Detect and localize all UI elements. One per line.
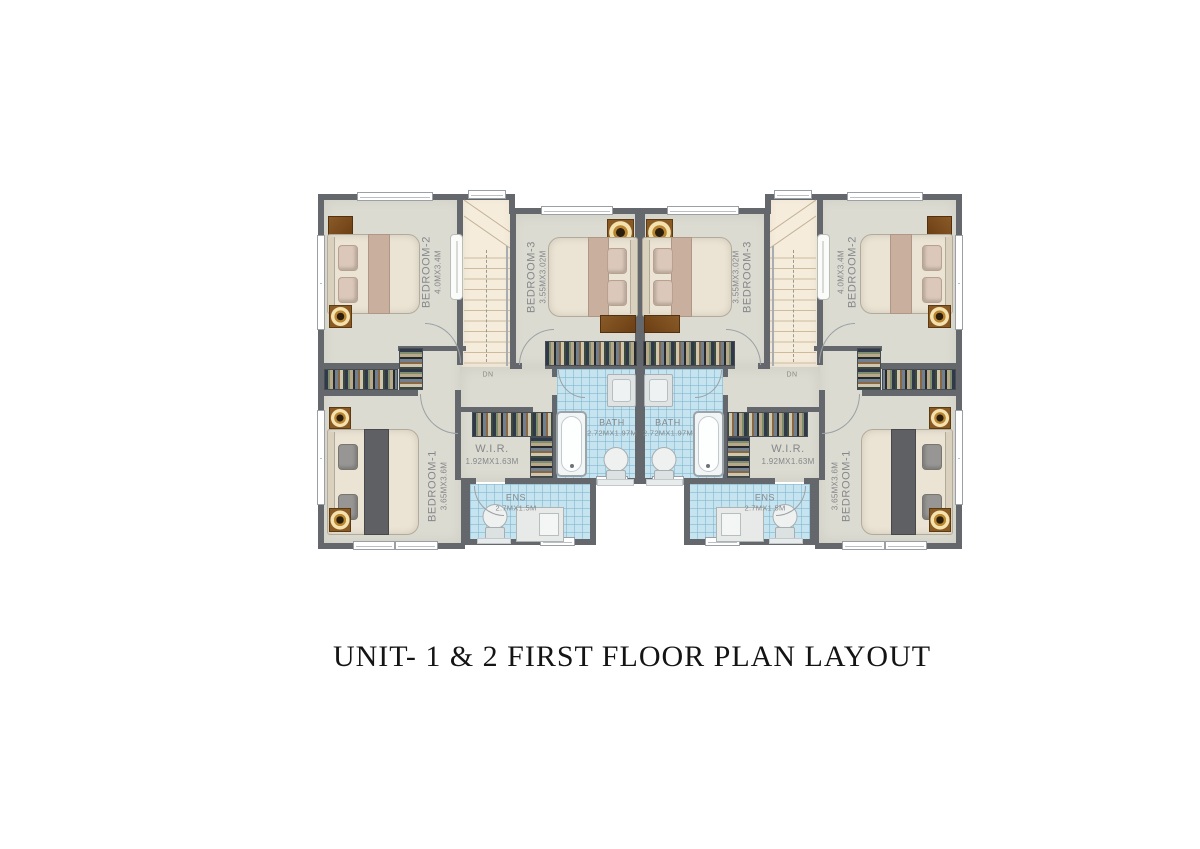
floor-rug <box>644 315 680 333</box>
wall <box>862 390 962 396</box>
wardrobe <box>882 369 956 390</box>
wardrobe <box>857 348 881 390</box>
room-label-ens-unit1: ENS 2.7MX1.5M <box>495 493 536 514</box>
pillow <box>338 444 358 470</box>
toilet-mat <box>477 538 511 544</box>
bed-runner <box>671 237 692 317</box>
floor-plan-page: BEDROOM-2 4.0MX3.4M BEDROOM-3 3.55MX3.02… <box>0 0 1200 849</box>
stairs-dn-label-unit1: DN <box>482 372 493 379</box>
unit-1-graphics <box>318 186 640 560</box>
nightstand-lamp <box>928 305 951 328</box>
bathtub <box>693 411 724 477</box>
radiator <box>817 234 830 300</box>
window <box>667 206 739 215</box>
wir-wardrobe <box>472 412 553 437</box>
bed-bedroom2 <box>327 234 420 314</box>
bed-bedroom3 <box>548 237 638 317</box>
pillow <box>607 248 627 274</box>
pillow <box>922 277 942 303</box>
bed-runner <box>364 429 389 535</box>
wall <box>461 478 470 543</box>
stair-diagonal-lines <box>464 198 510 250</box>
floor-rug <box>600 315 636 333</box>
wir-wardrobe <box>727 437 750 478</box>
pillow <box>607 280 627 306</box>
room-label-bedroom3-unit1: BEDROOM-3 3.55MX3.02M <box>526 241 549 313</box>
window <box>541 206 613 215</box>
bath-sink <box>607 374 636 407</box>
page-title: UNIT- 1 & 2 FIRST FLOOR PLAN LAYOUT <box>333 640 931 674</box>
window <box>955 235 963 330</box>
nightstand-lamp <box>329 407 351 429</box>
pillow <box>653 280 673 306</box>
wall <box>684 478 775 484</box>
wall <box>810 478 819 543</box>
window <box>357 192 433 201</box>
stair-walkline <box>792 250 794 362</box>
room-label-bedroom1-unit2: BEDROOM-1 3.65MX3.6M <box>831 450 854 522</box>
pillow <box>922 444 942 470</box>
window <box>317 235 325 330</box>
wardrobe <box>324 369 398 390</box>
room-label-ens-unit2: ENS 2.7MX1.5M <box>744 493 785 514</box>
stair-railing <box>772 246 774 366</box>
toilet <box>601 447 630 483</box>
bed-runner <box>891 429 916 535</box>
wall <box>590 482 596 545</box>
room-label-wir-unit1: W.I.R. 1.92MX1.63M <box>465 443 518 467</box>
pillow <box>922 245 942 271</box>
wardrobe <box>643 341 735 366</box>
room-label-wir-unit2: W.I.R. 1.92MX1.63M <box>761 443 814 467</box>
window <box>955 410 963 505</box>
bed-bedroom2 <box>860 234 953 314</box>
bath-sink <box>644 374 673 407</box>
bed-runner <box>368 234 390 314</box>
bed-headboard <box>328 237 335 312</box>
window <box>395 541 438 550</box>
nightstand-lamp <box>929 407 951 429</box>
stair-walkline <box>486 250 488 362</box>
bed-bedroom3 <box>642 237 732 317</box>
pillow <box>338 245 358 271</box>
window <box>842 541 885 550</box>
pillow <box>653 248 673 274</box>
toilet-mat <box>597 479 634 486</box>
bed-headboard <box>630 240 637 315</box>
bed-headboard <box>945 237 952 312</box>
pillow <box>338 277 358 303</box>
room-label-bath-unit2: BATH 2.72MX1.97M <box>643 418 693 439</box>
nightstand-lamp <box>329 305 352 328</box>
room-label-bath-unit1: BATH 2.72MX1.97M <box>587 418 637 439</box>
wardrobe <box>399 348 423 390</box>
nightstand-lamp <box>929 508 951 532</box>
wir-wardrobe <box>530 437 553 478</box>
bed-runner <box>588 237 609 317</box>
room-label-bedroom2-unit2: BEDROOM-2 4.0MX3.4M <box>837 236 860 308</box>
room-label-bedroom1-unit1: BEDROOM-1 3.65MX3.6M <box>427 450 450 522</box>
wir-wardrobe <box>727 412 808 437</box>
stairs-dn-label-unit2: DN <box>786 372 797 379</box>
stair-diagonal-lines <box>770 198 816 250</box>
wall <box>505 478 596 484</box>
bed-runner <box>890 234 912 314</box>
toilet-mat <box>646 479 683 486</box>
wardrobe <box>545 341 637 366</box>
stair-railing <box>506 246 508 366</box>
room-label-bedroom3-unit2: BEDROOM-3 3.55MX3.02M <box>732 241 755 313</box>
window <box>317 410 325 505</box>
nightstand-lamp <box>329 508 351 532</box>
window <box>353 541 395 550</box>
wall <box>684 482 690 545</box>
unit-2-graphics <box>640 186 962 560</box>
toilet <box>650 447 679 483</box>
toilet-mat <box>769 538 803 544</box>
radiator <box>450 234 463 300</box>
window <box>885 541 927 550</box>
bed-headboard <box>643 240 650 315</box>
wall <box>318 390 418 396</box>
bathtub <box>556 411 587 477</box>
room-label-bedroom2-unit1: BEDROOM-2 4.0MX3.4M <box>421 236 444 308</box>
wall-stair-right <box>510 208 516 367</box>
window <box>847 192 923 201</box>
